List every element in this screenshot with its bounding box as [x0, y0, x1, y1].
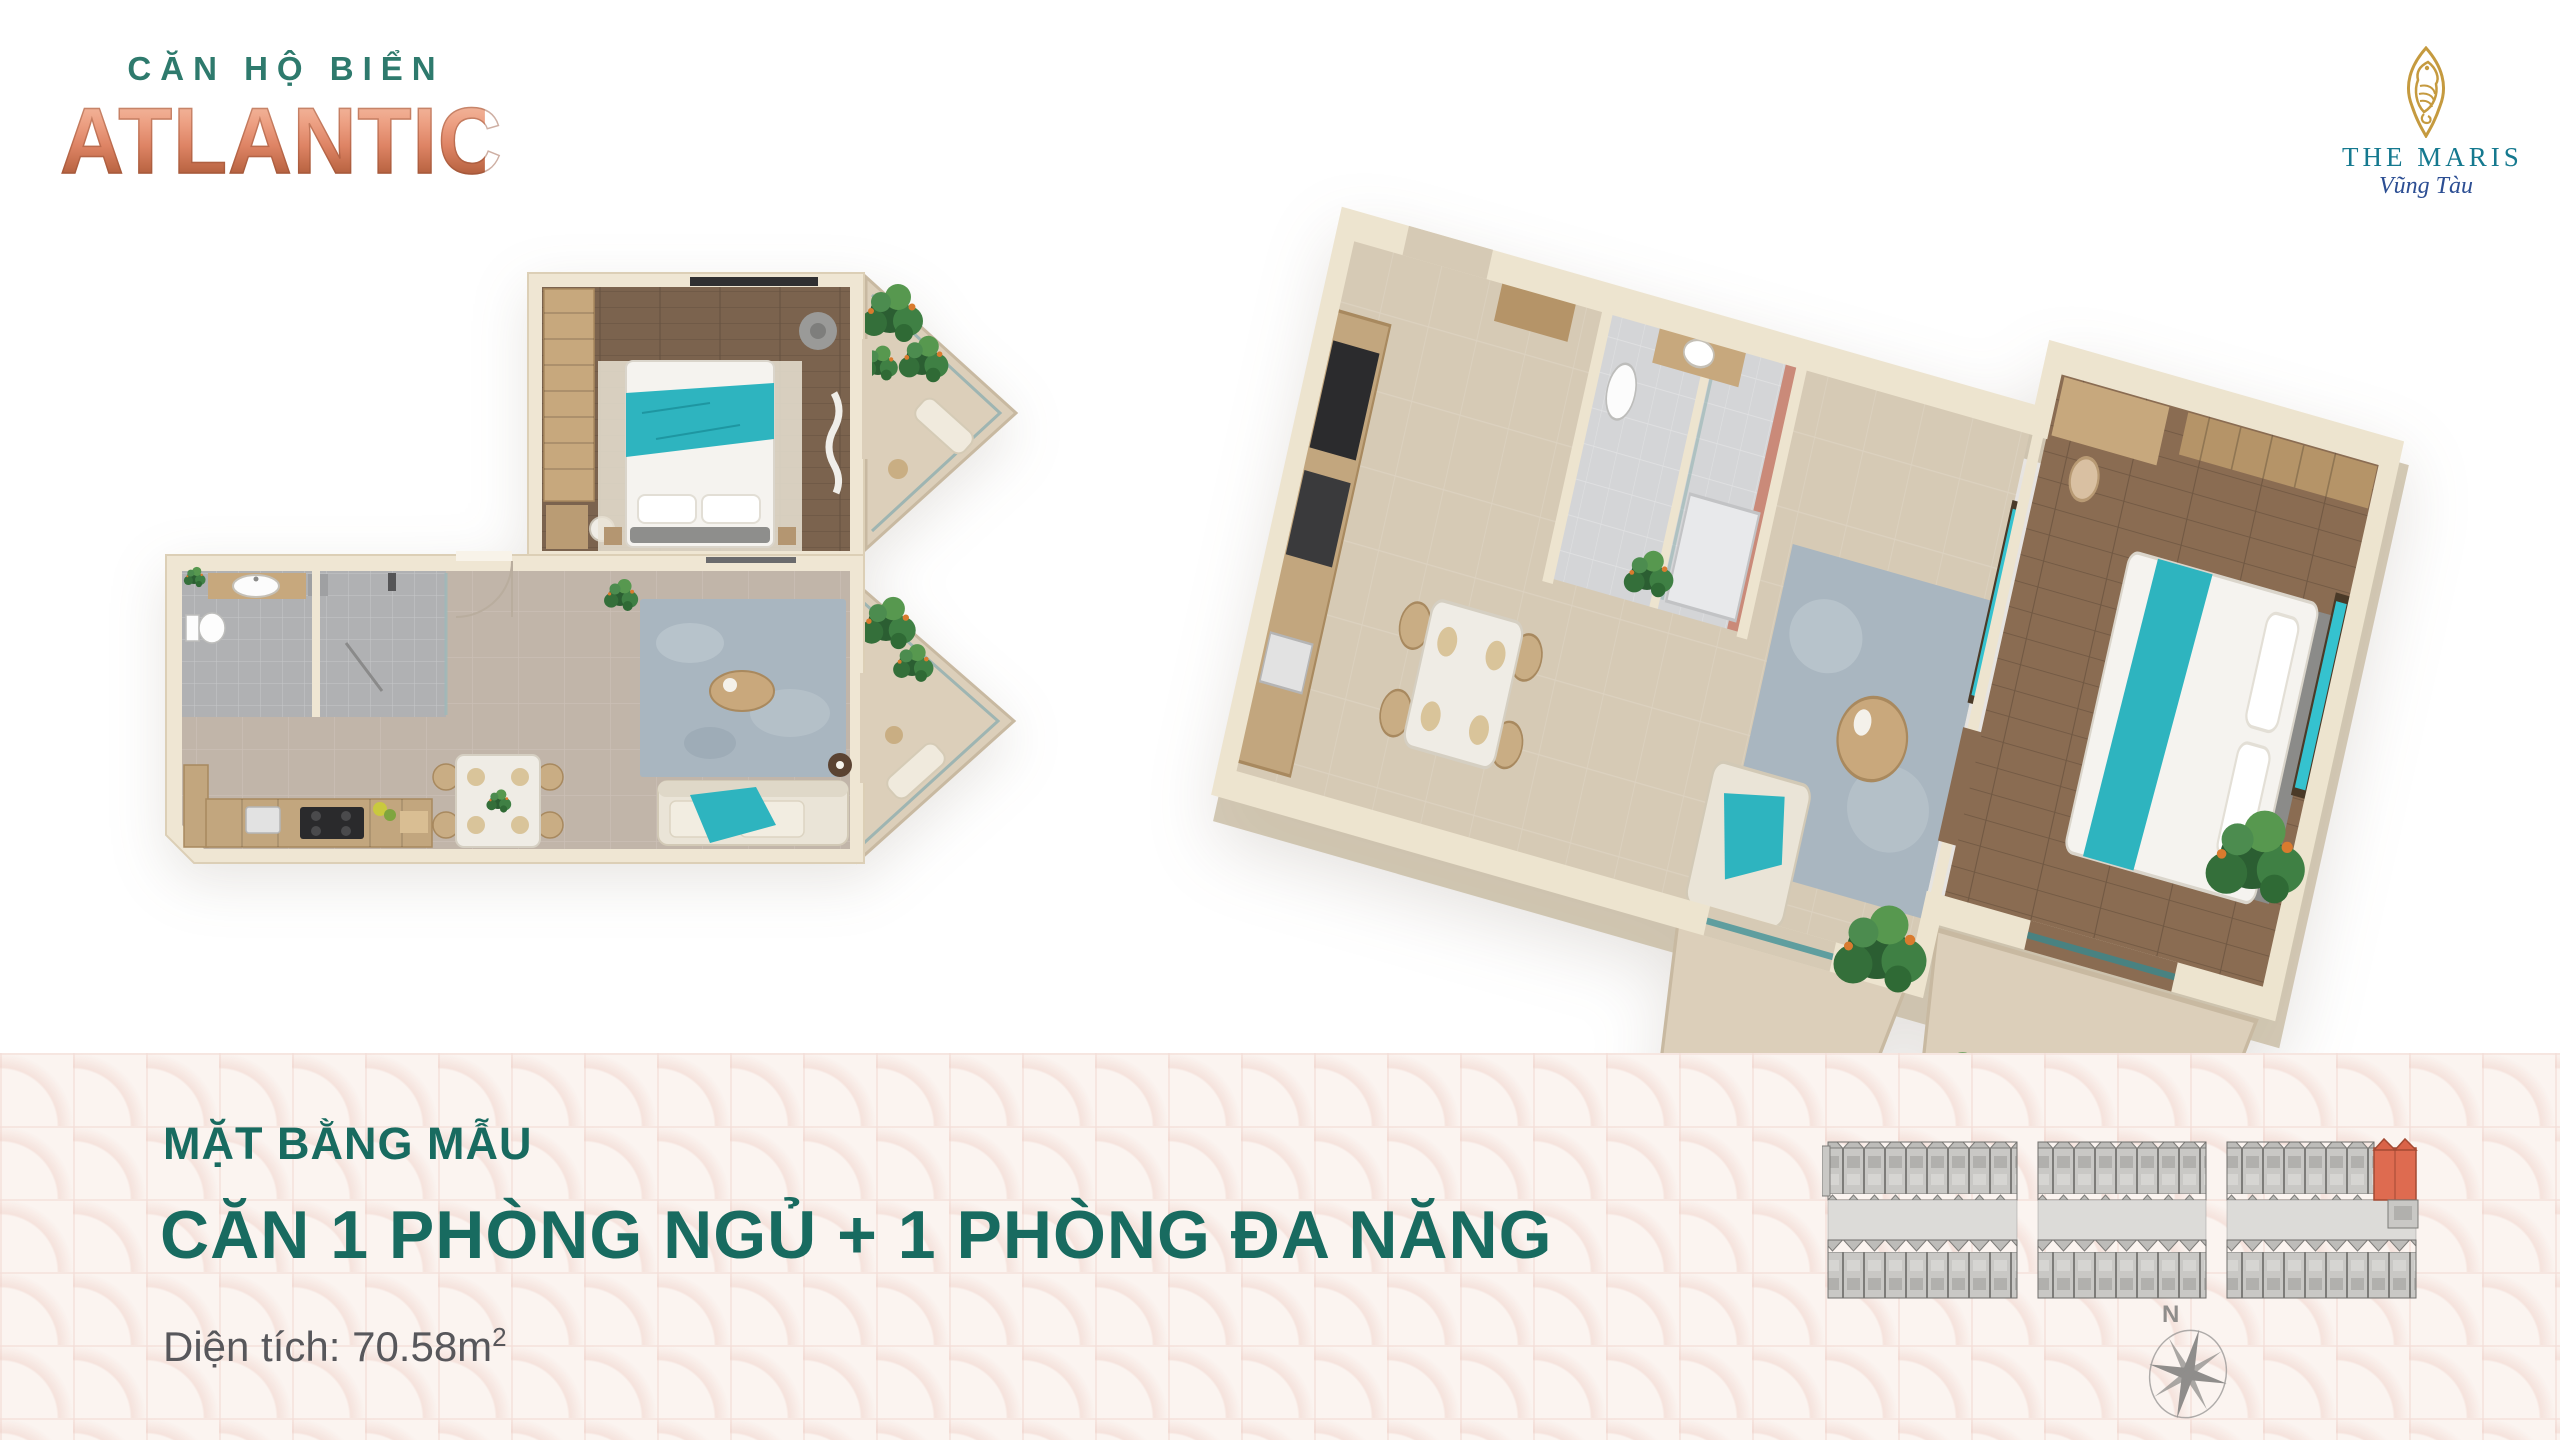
balcony-top [861, 277, 1016, 549]
plan-heading: MẶT BẰNG MẪU [163, 1118, 532, 1170]
highlighted-unit [2374, 1139, 2416, 1200]
sliding-door [706, 557, 796, 563]
area-text: Diện tích: 70.58m2 [163, 1322, 507, 1371]
area-superscript: 2 [492, 1322, 506, 1352]
bed [626, 361, 774, 547]
living-room [640, 599, 852, 845]
tv-icon [690, 277, 818, 286]
bedroom [528, 273, 872, 565]
compass-star [2138, 1320, 2238, 1429]
compass-north-label: N [2162, 1301, 2179, 1328]
shower-icon [388, 573, 396, 591]
plants-icon [861, 284, 949, 382]
entry-door-gap [456, 551, 512, 561]
key-plan-strip [1822, 1139, 2418, 1298]
sink-icon [246, 807, 280, 833]
balcony-door-gap [862, 339, 872, 459]
coffee-table [710, 671, 774, 711]
toilet-icon [199, 613, 225, 643]
compass-rose-icon: N [2128, 1296, 2248, 1432]
unit-type-heading: CĂN 1 PHÒNG NGỦ + 1 PHÒNG ĐA NĂNG [160, 1196, 1553, 1274]
desk [546, 505, 588, 549]
brand-tagline: CĂN HỘ BIỂN [60, 50, 512, 88]
bathroom [182, 567, 446, 717]
building-key-plan [1822, 1136, 2426, 1306]
balcony-bottom [858, 585, 1014, 861]
living-block [166, 551, 870, 863]
sofa [658, 781, 848, 845]
area-label: Diện tích: 70.58m [163, 1323, 492, 1370]
brand-name: ATLANTIC [60, 94, 485, 188]
cooktop-icon [300, 807, 364, 839]
balcony-door-gap [860, 673, 870, 783]
brand-logo: CĂN HỘ BIỂN ATLANTIC [60, 50, 512, 188]
floorplan-2d [150, 243, 1030, 883]
marketing-page: CĂN HỘ BIỂN ATLANTIC THE MARIS Vũng Tàu [0, 0, 2560, 1440]
